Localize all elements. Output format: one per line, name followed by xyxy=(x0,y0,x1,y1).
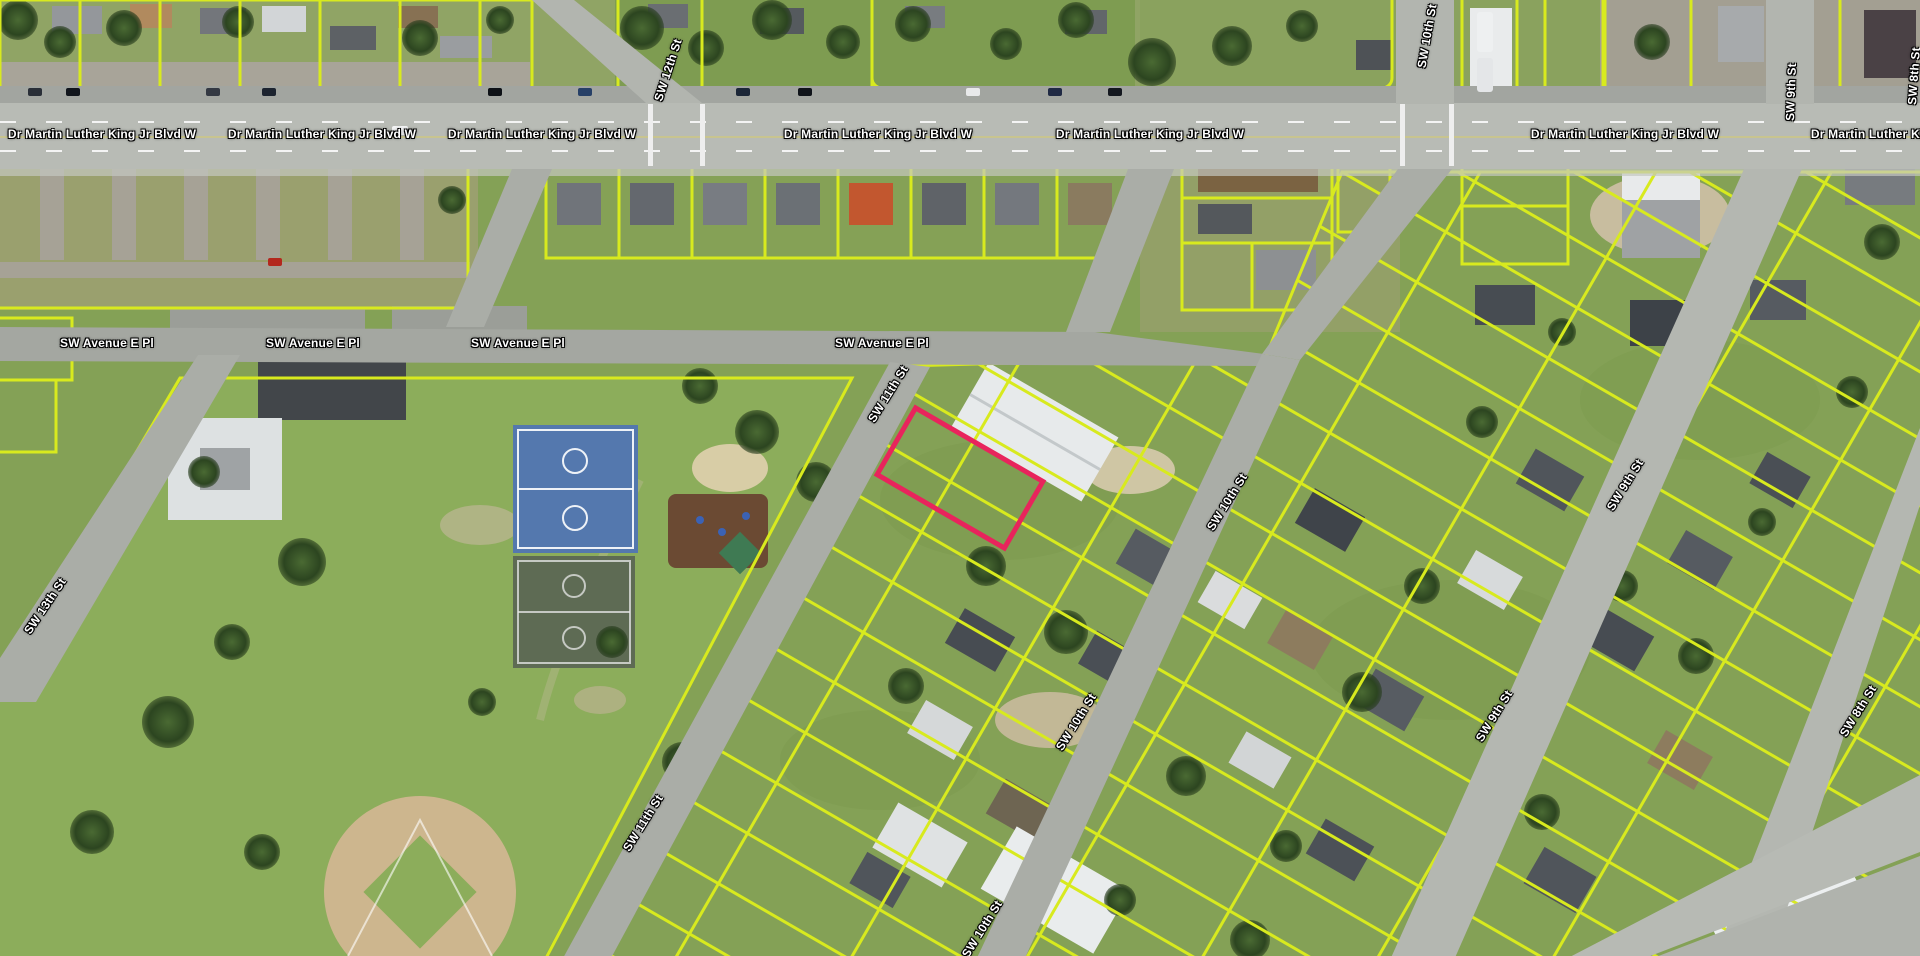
road-sw-avenue-e-pl xyxy=(0,327,1264,366)
street-label-mlk-blvd: Dr Martin Luther King Jr Blvd W xyxy=(1531,127,1719,141)
street-label-sw-avenue-e-pl: SW Avenue E Pl xyxy=(471,336,565,350)
street-label-mlk-blvd: Dr Martin Luther King Jr Blvd W xyxy=(8,127,196,141)
street-label-sw-avenue-e-pl: SW Avenue E Pl xyxy=(835,336,929,350)
street-label-mlk-blvd: Dr Martin Luther King Jr Blvd W xyxy=(1811,127,1920,141)
street-label-mlk-blvd: Dr Martin Luther King Jr Blvd W xyxy=(1056,127,1244,141)
street-label-sw-avenue-e-pl: SW Avenue E Pl xyxy=(60,336,154,350)
street-label-sw-9th-st: SW 9th St xyxy=(1783,63,1799,121)
aerial-map-canvas[interactable]: Dr Martin Luther King Jr Blvd W Dr Marti… xyxy=(0,0,1920,956)
street-label-mlk-blvd: Dr Martin Luther King Jr Blvd W xyxy=(448,127,636,141)
street-label-sw-avenue-e-pl: SW Avenue E Pl xyxy=(266,336,360,350)
street-label-mlk-blvd: Dr Martin Luther King Jr Blvd W xyxy=(784,127,972,141)
street-label-mlk-blvd: Dr Martin Luther King Jr Blvd W xyxy=(228,127,416,141)
